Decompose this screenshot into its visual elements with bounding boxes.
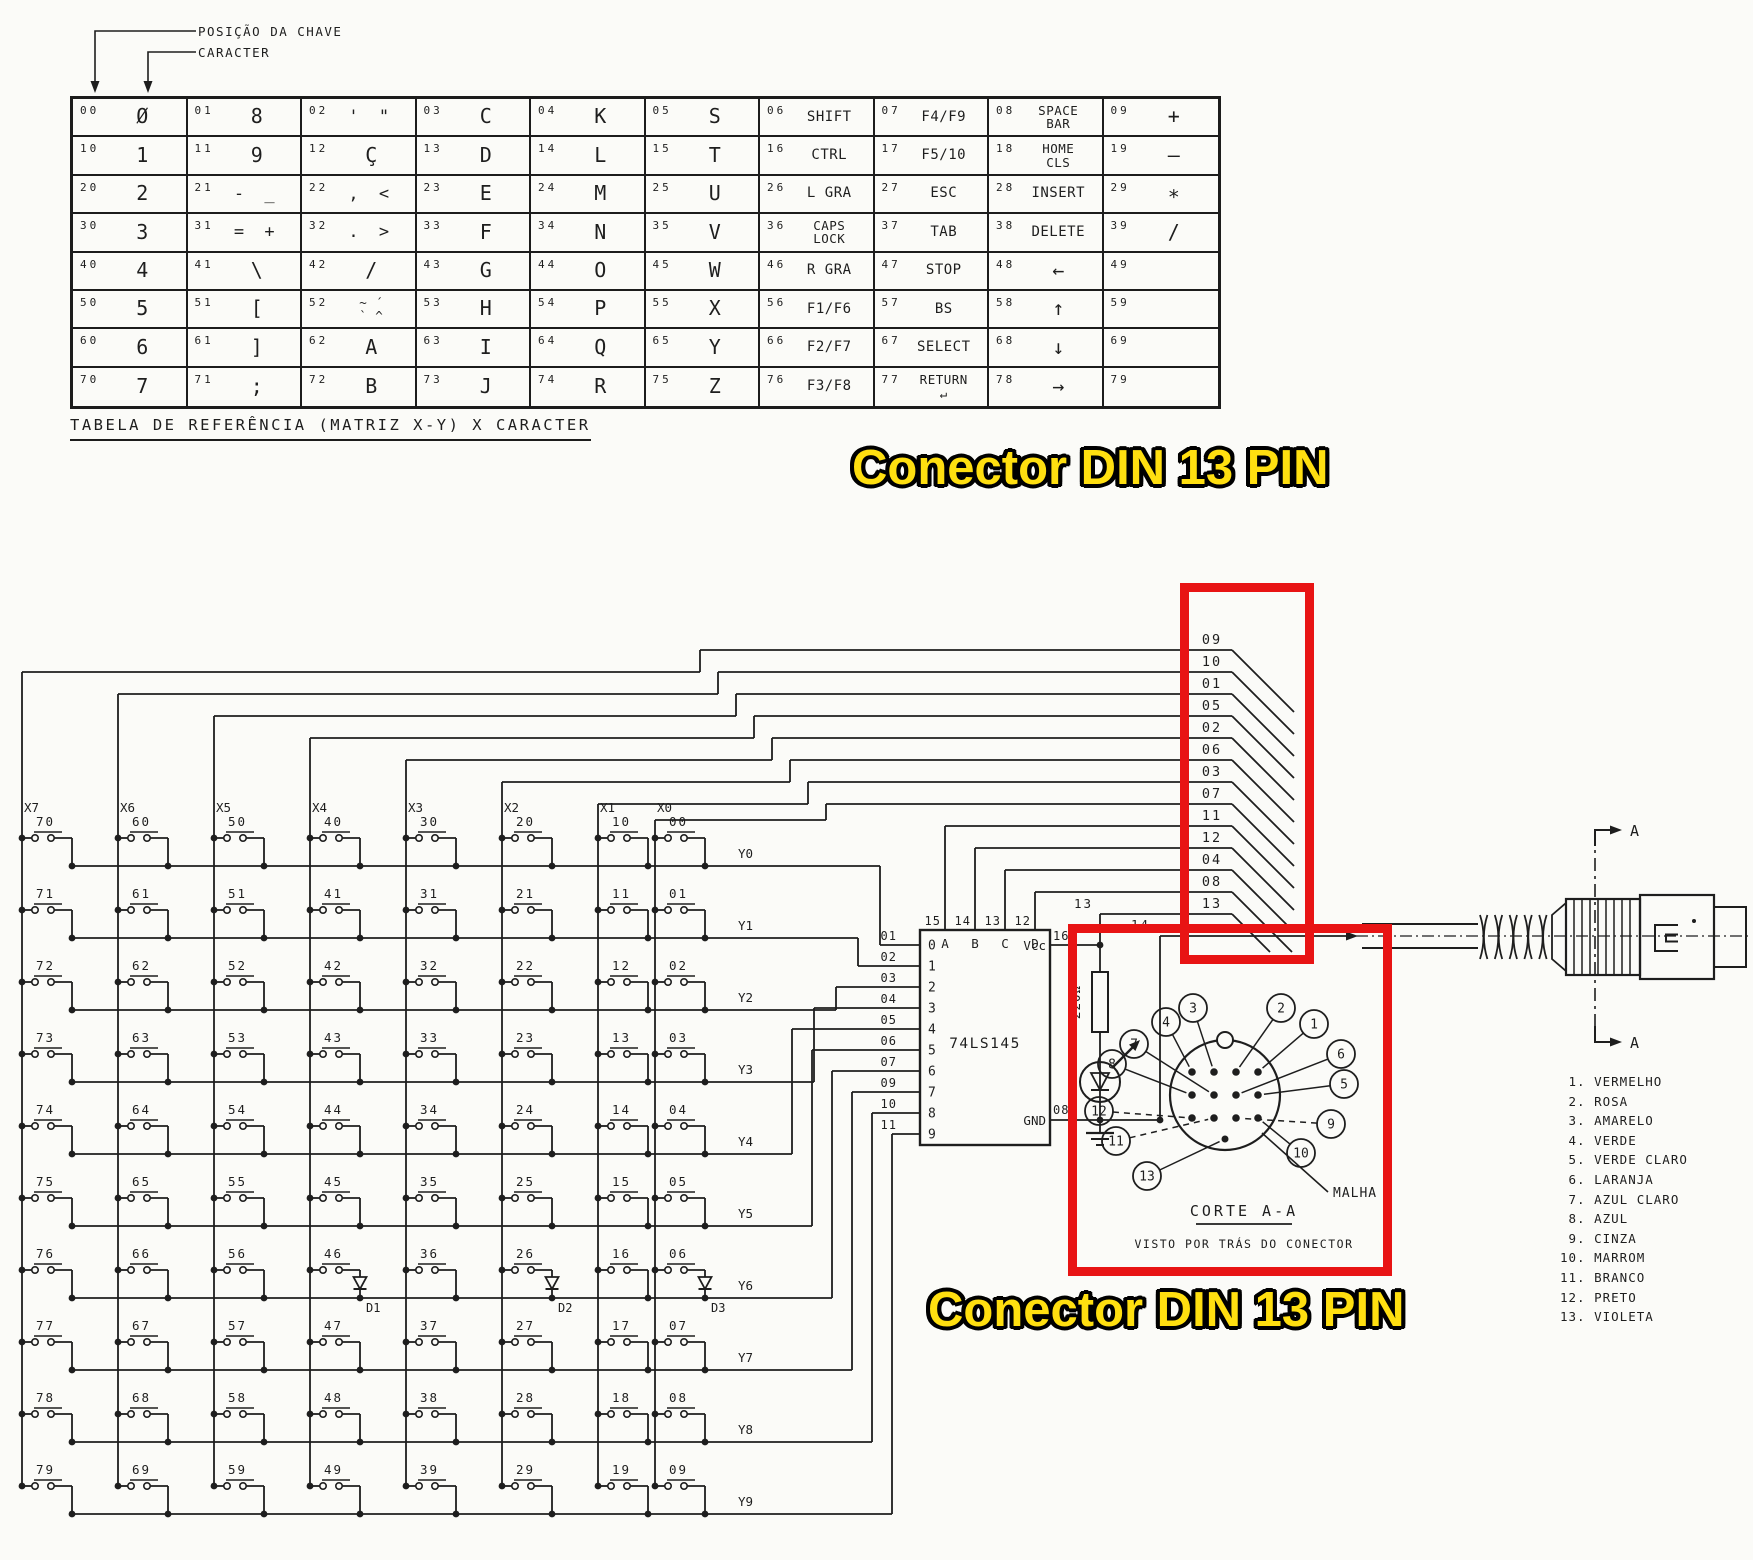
key-character: B [365,376,377,398]
key-position-code: 44 [538,258,557,271]
svg-text:67: 67 [132,1318,151,1333]
matrix-cell-71: 71; [188,368,303,406]
key-position-code: 16 [767,142,786,155]
svg-text:73: 73 [36,1030,55,1045]
svg-text:33: 33 [420,1030,439,1045]
table-caption: TABELA DE REFERÊNCIA (MATRIZ X-Y) X CARA… [70,416,591,441]
svg-text:05: 05 [669,1174,688,1189]
svg-text:06: 06 [669,1246,688,1261]
key-character: — [1168,145,1180,167]
key-position-code: 24 [538,181,557,194]
svg-text:58: 58 [228,1390,247,1405]
matrix-cell-01: 018 [188,99,303,137]
svg-text:2: 2 [928,981,936,996]
key-position-code: 06 [767,104,786,117]
svg-text:6: 6 [928,1065,936,1080]
svg-text:8: 8 [928,1107,936,1122]
key-position-code: 43 [424,258,443,271]
svg-text:60: 60 [132,814,151,829]
legend-item-13: 13. VIOLETA [1560,1307,1688,1327]
svg-text:66: 66 [132,1246,151,1261]
svg-text:12: 12 [1015,914,1031,928]
key-position-code: 63 [424,334,443,347]
svg-text:10: 10 [612,814,631,829]
key-character: J [480,376,492,398]
key-character: F [480,222,492,244]
svg-text:72: 72 [36,958,55,973]
svg-text:37: 37 [420,1318,439,1333]
svg-text:65: 65 [132,1174,151,1189]
matrix-cell-79: 79 [1104,368,1219,406]
legend-item-7: 7. AZUL CLARO [1560,1190,1688,1210]
key-character: ↓ [1052,337,1064,359]
svg-text:61: 61 [132,886,151,901]
key-position-code: 60 [80,334,99,347]
matrix-cell-66: 66F2/F7 [760,329,875,367]
svg-text:09: 09 [881,1076,897,1090]
svg-text:74LS145: 74LS145 [949,1036,1021,1052]
svg-text:59: 59 [228,1462,247,1477]
wire-color-legend: 1. VERMELHO 2. ROSA 3. AMARELO 4. VERDE … [1560,1072,1688,1327]
svg-text:B: B [971,936,979,951]
svg-text:24: 24 [516,1102,535,1117]
svg-text:X2: X2 [504,800,519,815]
matrix-cell-74: 74R [531,368,646,406]
key-character: ↑ [1052,298,1064,320]
svg-text:X6: X6 [120,800,135,815]
key-character: ~ ´ ` ^ [359,296,383,323]
svg-text:64: 64 [132,1102,151,1117]
din-plug-drawing: AA [1356,822,1748,1052]
svg-text:04: 04 [881,992,897,1006]
legend-item-3: 3. AMARELO [1560,1111,1688,1131]
matrix-cell-20: 202 [73,176,188,214]
matrix-cell-16: 16CTRL [760,137,875,175]
key-position-code: 57 [882,296,901,309]
key-character: BS [935,302,953,317]
svg-text:13: 13 [1074,896,1093,911]
matrix-cell-77: 77RETURN ↵ [875,368,990,406]
key-character: CAPS LOCK [813,219,845,246]
matrix-cell-75: 75Z [646,368,761,406]
svg-text:0: 0 [928,939,936,954]
key-position-code: 77 [882,373,901,386]
key-position-code: 79 [1111,373,1130,386]
matrix-cell-51: 51[ [188,291,303,329]
key-position-code: 62 [309,334,328,347]
key-character: A [365,337,377,359]
matrix-cell-65: 65Y [646,329,761,367]
svg-text:75: 75 [36,1174,55,1189]
matrix-cell-29: 29∗ [1104,176,1219,214]
svg-text:38: 38 [420,1390,439,1405]
svg-text:53: 53 [228,1030,247,1045]
matrix-cell-60: 606 [73,329,188,367]
svg-text:3: 3 [928,1002,936,1017]
svg-text:51: 51 [228,886,247,901]
matrix-cell-55: 55X [646,291,761,329]
svg-text:26: 26 [516,1246,535,1261]
svg-text:09: 09 [669,1462,688,1477]
highlight-box-din-face [1068,924,1392,1276]
svg-text:00: 00 [669,814,688,829]
key-position-code: 65 [653,334,672,347]
svg-text:03: 03 [881,971,897,985]
key-position-code: 11 [195,142,214,155]
svg-text:D2: D2 [558,1301,572,1315]
svg-text:Y8: Y8 [738,1422,753,1437]
key-character: SHIFT [807,110,852,125]
key-character: V [709,222,721,244]
key-character: - _ [234,185,280,203]
svg-text:02: 02 [669,958,688,973]
svg-text:Y4: Y4 [738,1134,753,1149]
svg-text:D1: D1 [366,1301,380,1315]
key-position-code: 47 [882,258,901,271]
matrix-cell-38: 38DELETE [989,214,1104,252]
svg-text:30: 30 [420,814,439,829]
svg-text:05: 05 [881,1013,897,1027]
key-character: 7 [136,376,148,398]
key-character: T [709,145,721,167]
key-character: SPACE BAR [1038,104,1078,131]
svg-text:13: 13 [612,1030,631,1045]
svg-text:14: 14 [955,914,971,928]
matrix-cell-73: 73J [417,368,532,406]
matrix-cell-30: 303 [73,214,188,252]
svg-text:14: 14 [612,1102,631,1117]
svg-text:29: 29 [516,1462,535,1477]
key-character: E [480,183,492,205]
key-character: 2 [136,183,148,205]
key-position-code: 46 [767,258,786,271]
key-character: Ç [365,145,377,167]
svg-text:42: 42 [324,958,343,973]
key-position-code: 31 [195,219,214,232]
svg-text:Vcc: Vcc [1023,938,1046,953]
matrix-cell-69: 69 [1104,329,1219,367]
key-position-code: 21 [195,181,214,194]
matrix-cell-63: 63I [417,329,532,367]
key-character: Ø [136,106,148,128]
svg-text:40: 40 [324,814,343,829]
key-character: STOP [926,263,962,278]
key-position-code: 15 [653,142,672,155]
matrix-cell-57: 57BS [875,291,990,329]
svg-text:28: 28 [516,1390,535,1405]
legend-item-11: 11. BRANCO [1560,1268,1688,1288]
matrix-cell-56: 56F1/F6 [760,291,875,329]
matrix-cell-59: 59 [1104,291,1219,329]
key-position-code: 69 [1111,334,1130,347]
svg-text:47: 47 [324,1318,343,1333]
svg-text:13: 13 [985,914,1001,928]
matrix-cell-62: 62A [302,329,417,367]
key-position-code: 76 [767,373,786,386]
key-character: ← [1052,260,1064,282]
matrix-cell-27: 27ESC [875,176,990,214]
key-character: G [480,260,492,282]
key-character: 5 [136,298,148,320]
matrix-cell-15: 15T [646,137,761,175]
key-character: N [594,222,606,244]
key-position-code: 51 [195,296,214,309]
key-position-code: 18 [996,142,1015,155]
key-position-code: 09 [1111,104,1130,117]
key-character: ' " [348,108,394,126]
key-position-code: 50 [80,296,99,309]
matrix-cell-52: 52~ ´ ` ^ [302,291,417,329]
matrix-cell-48: 48← [989,253,1104,291]
key-character: = + [234,223,280,241]
key-position-code: 20 [80,181,99,194]
key-position-code: 70 [80,373,99,386]
key-character: INSERT [1031,186,1085,201]
key-position-code: 37 [882,219,901,232]
svg-text:69: 69 [132,1462,151,1477]
key-character: CTRL [811,148,847,163]
key-position-code: 26 [767,181,786,194]
matrix-cell-33: 33F [417,214,532,252]
key-character: F1/F6 [807,302,852,317]
svg-text:16: 16 [1053,929,1069,943]
key-position-code: 23 [424,181,443,194]
key-character: → [1052,376,1064,398]
svg-text:X0: X0 [657,800,672,815]
svg-text:25: 25 [516,1174,535,1189]
key-matrix-reference-table: 00Ø01802' "03C04K05S06SHIFT07F4/F908SPAC… [70,96,1221,409]
annotation-arrows [91,31,197,93]
svg-text:1: 1 [928,960,936,975]
svg-text:02: 02 [881,950,897,964]
key-position-code: 30 [80,219,99,232]
key-character: ] [251,337,263,359]
key-position-code: 22 [309,181,328,194]
key-position-code: 13 [424,142,443,155]
svg-text:X7: X7 [24,800,39,815]
svg-text:19: 19 [612,1462,631,1477]
key-character: 3 [136,222,148,244]
key-character: I [480,337,492,359]
key-character: ∗ [1168,183,1180,205]
din-banner-top: Conector DIN 13 PIN [852,440,1328,496]
key-character: Y [709,337,721,359]
svg-text:07: 07 [881,1055,897,1069]
svg-text:12: 12 [612,958,631,973]
key-position-code: 53 [424,296,443,309]
key-position-code: 45 [653,258,672,271]
svg-text:A: A [941,936,949,951]
svg-text:21: 21 [516,886,535,901]
key-character: F3/F8 [807,379,852,394]
key-character: Q [594,337,606,359]
key-character: ESC [930,186,957,201]
svg-text:07: 07 [669,1318,688,1333]
key-position-code: 72 [309,373,328,386]
svg-text:35: 35 [420,1174,439,1189]
matrix-cell-34: 34N [531,214,646,252]
key-character: W [709,260,721,282]
svg-text:50: 50 [228,814,247,829]
svg-text:76: 76 [36,1246,55,1261]
matrix-cell-72: 72B [302,368,417,406]
svg-text:Y2: Y2 [738,990,753,1005]
key-position-code: 71 [195,373,214,386]
matrix-cell-05: 05S [646,99,761,137]
key-character: SELECT [917,340,971,355]
svg-text:5: 5 [928,1044,936,1059]
key-position-code: 49 [1111,258,1130,271]
key-position-code: 74 [538,373,557,386]
highlight-box-connector-wires [1180,583,1314,964]
key-position-code: 48 [996,258,1015,271]
svg-text:71: 71 [36,886,55,901]
svg-text:74: 74 [36,1102,55,1117]
svg-text:77: 77 [36,1318,55,1333]
key-character: RETURN ↵ [920,373,968,400]
svg-text:63: 63 [132,1030,151,1045]
matrix-cell-53: 53H [417,291,532,329]
key-position-code: 40 [80,258,99,271]
matrix-cell-37: 37TAB [875,214,990,252]
key-position-code: 04 [538,104,557,117]
key-position-code: 75 [653,373,672,386]
svg-text:43: 43 [324,1030,343,1045]
matrix-cell-61: 61] [188,329,303,367]
svg-text:Y7: Y7 [738,1350,753,1365]
key-character: H [480,298,492,320]
key-position-code: 55 [653,296,672,309]
matrix-cell-02: 02' " [302,99,417,137]
key-position-code: 14 [538,142,557,155]
svg-text:01: 01 [881,929,897,943]
key-position-code: 05 [653,104,672,117]
key-position-code: 25 [653,181,672,194]
svg-text:45: 45 [324,1174,343,1189]
key-character: L GRA [807,186,852,201]
key-position-code: 56 [767,296,786,309]
svg-text:15: 15 [925,914,941,928]
key-position-code: 28 [996,181,1015,194]
svg-text:57: 57 [228,1318,247,1333]
annotation-key-position: POSIÇÃO DA CHAVE [198,24,342,39]
matrix-cell-21: 21- _ [188,176,303,214]
key-character: 8 [251,106,263,128]
svg-text:A: A [1630,1034,1639,1052]
svg-text:Y1: Y1 [738,918,753,933]
key-character: \ [251,260,263,282]
matrix-cell-06: 06SHIFT [760,99,875,137]
matrix-cell-46: 46R GRA [760,253,875,291]
matrix-cell-11: 119 [188,137,303,175]
matrix-cell-12: 12Ç [302,137,417,175]
svg-text:20: 20 [516,814,535,829]
key-position-code: 38 [996,219,1015,232]
key-character: D [480,145,492,167]
svg-text:54: 54 [228,1102,247,1117]
key-character: 4 [136,260,148,282]
svg-text:7: 7 [928,1086,936,1101]
svg-text:22: 22 [516,958,535,973]
svg-text:Y3: Y3 [738,1062,753,1077]
key-position-code: 68 [996,334,1015,347]
key-character: O [594,260,606,282]
matrix-cell-00: 00Ø [73,99,188,137]
svg-text:41: 41 [324,886,343,901]
key-position-code: 19 [1111,142,1130,155]
matrix-cell-64: 64Q [531,329,646,367]
key-character: DELETE [1031,225,1085,240]
matrix-cell-40: 404 [73,253,188,291]
legend-item-1: 1. VERMELHO [1560,1072,1688,1092]
key-position-code: 78 [996,373,1015,386]
key-position-code: 39 [1111,219,1130,232]
matrix-cell-22: 22, < [302,176,417,214]
matrix-cell-24: 24M [531,176,646,214]
svg-text:10: 10 [881,1097,897,1111]
matrix-cell-14: 14L [531,137,646,175]
key-character: M [594,183,606,205]
key-position-code: 02 [309,104,328,117]
svg-text:17: 17 [612,1318,631,1333]
legend-item-10: 10. MARROM [1560,1248,1688,1268]
svg-text:18: 18 [612,1390,631,1405]
key-character: , < [348,185,394,203]
svg-text:A: A [1630,822,1639,840]
key-position-code: 33 [424,219,443,232]
matrix-cell-45: 45W [646,253,761,291]
svg-text:X5: X5 [216,800,231,815]
matrix-cell-03: 03C [417,99,532,137]
matrix-cell-32: 32. > [302,214,417,252]
key-position-code: 41 [195,258,214,271]
key-character: R GRA [807,263,852,278]
key-position-code: 17 [882,142,901,155]
key-character: [ [251,298,263,320]
svg-text:X1: X1 [600,800,615,815]
svg-text:31: 31 [420,886,439,901]
svg-text:08: 08 [1053,1103,1069,1117]
svg-text:32: 32 [420,958,439,973]
key-position-code: 66 [767,334,786,347]
svg-text:16: 16 [612,1246,631,1261]
svg-text:52: 52 [228,958,247,973]
matrix-cell-44: 44O [531,253,646,291]
matrix-cell-36: 36CAPS LOCK [760,214,875,252]
key-position-code: 58 [996,296,1015,309]
svg-text:03: 03 [669,1030,688,1045]
key-position-code: 01 [195,104,214,117]
key-position-code: 07 [882,104,901,117]
key-character: F2/F7 [807,340,852,355]
svg-text:70: 70 [36,814,55,829]
svg-text:06: 06 [881,1034,897,1048]
key-character: . > [348,223,394,241]
key-character: U [709,183,721,205]
svg-text:15: 15 [612,1174,631,1189]
svg-text:Y5: Y5 [738,1206,753,1221]
svg-text:49: 49 [324,1462,343,1477]
key-character: R [594,376,606,398]
key-position-code: 42 [309,258,328,271]
legend-item-4: 4. VERDE [1560,1131,1688,1151]
svg-text:68: 68 [132,1390,151,1405]
matrix-cell-09: 09+ [1104,99,1219,137]
matrix-cell-18: 18HOME CLS [989,137,1104,175]
key-position-code: 08 [996,104,1015,117]
key-character: 9 [251,145,263,167]
key-position-code: 64 [538,334,557,347]
